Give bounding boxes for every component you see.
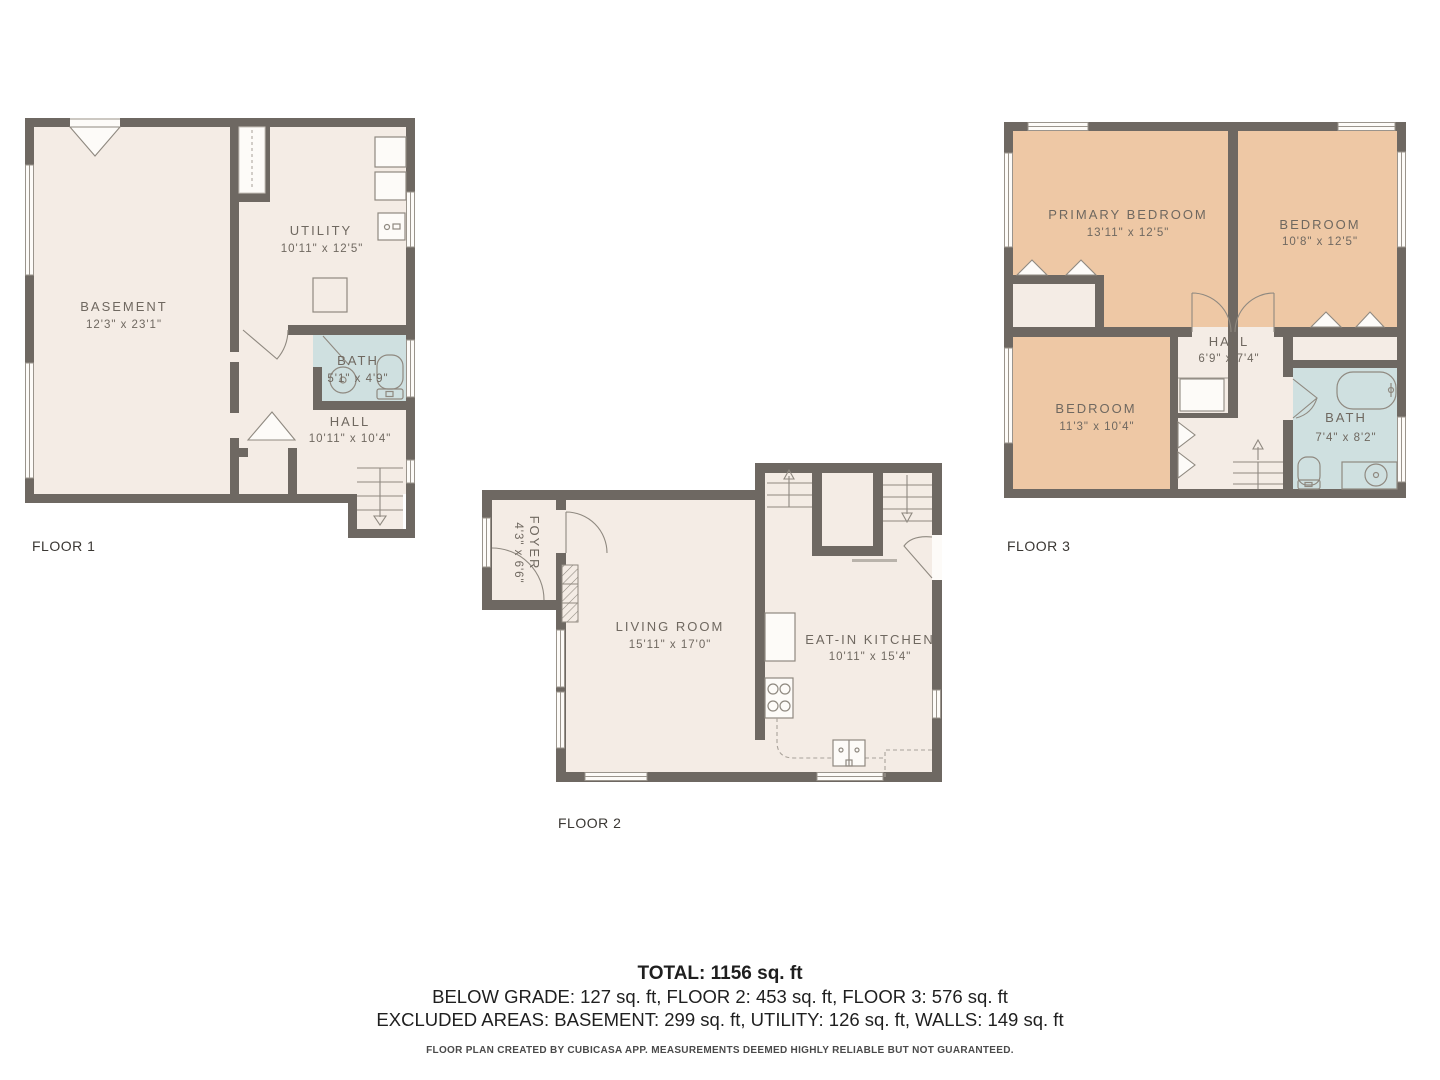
room-name: HALL bbox=[1209, 334, 1250, 349]
room-name: UTILITY bbox=[290, 223, 352, 238]
floor-1-plan: BASEMENT 12'3" x 23'1" UTILITY 10'11" x … bbox=[25, 118, 415, 540]
room-dims: 11'3" x 10'4" bbox=[1059, 421, 1134, 433]
room-name: BASEMENT bbox=[80, 299, 168, 314]
room-dims: 7'4" x 8'2" bbox=[1315, 432, 1376, 444]
room-dims: 10'11" x 10'4" bbox=[309, 433, 392, 445]
floor-plan-sheet: BASEMENT 12'3" x 23'1" UTILITY 10'11" x … bbox=[0, 0, 1440, 1080]
room-dims: 10'11" x 15'4" bbox=[829, 651, 912, 663]
floor-2-label: FLOOR 2 bbox=[558, 815, 621, 831]
area-summary: TOTAL: 1156 sq. ft BELOW GRADE: 127 sq. … bbox=[0, 963, 1440, 1056]
room-dims: 5'1" x 4'9" bbox=[327, 373, 388, 385]
room-name: BATH bbox=[1325, 410, 1367, 425]
room-dims: 4'3" x 6'6" bbox=[512, 522, 524, 583]
chimney bbox=[562, 565, 578, 622]
stove bbox=[765, 678, 793, 718]
room-dims: 10'11" x 12'5" bbox=[281, 243, 364, 255]
kitchen-counter bbox=[765, 613, 795, 661]
room-dims: 13'11" x 12'5" bbox=[1087, 227, 1170, 239]
room-dims: 12'3" x 23'1" bbox=[86, 319, 162, 331]
room-name: BATH bbox=[337, 353, 379, 368]
disclaimer: FLOOR PLAN CREATED BY CUBICASA APP. MEAS… bbox=[0, 1045, 1440, 1056]
floor-3-label: FLOOR 3 bbox=[1007, 538, 1070, 554]
room-dims: 10'8" x 12'5" bbox=[1282, 236, 1358, 248]
floor-2-plan: LIVING ROOM 15'11" x 17'0" EAT-IN KITCHE… bbox=[482, 452, 942, 784]
hall-closet bbox=[1178, 378, 1228, 411]
total-area: TOTAL: 1156 sq. ft bbox=[0, 963, 1440, 985]
kitchen-sink bbox=[833, 740, 865, 766]
room-name: BEDROOM bbox=[1279, 217, 1360, 232]
room-dims: 6'9" x 7'4" bbox=[1198, 353, 1259, 365]
room-name: BEDROOM bbox=[1055, 401, 1136, 416]
room-name: LIVING ROOM bbox=[616, 619, 725, 634]
room-name: EAT-IN KITCHEN bbox=[805, 632, 935, 647]
room-name: HALL bbox=[330, 414, 371, 429]
floor-areas: BELOW GRADE: 127 sq. ft, FLOOR 2: 453 sq… bbox=[0, 985, 1440, 1008]
floor-1-chase bbox=[239, 127, 265, 193]
floor-3-plan: PRIMARY BEDROOM 13'11" x 12'5" BEDROOM 1… bbox=[1004, 122, 1406, 498]
room-name: PRIMARY BEDROOM bbox=[1048, 207, 1208, 222]
room-dims: 15'11" x 17'0" bbox=[629, 639, 712, 651]
room-name: FOYER bbox=[527, 516, 542, 571]
excluded-areas: EXCLUDED AREAS: BASEMENT: 299 sq. ft, UT… bbox=[0, 1008, 1440, 1031]
floor-1-label: FLOOR 1 bbox=[32, 538, 95, 554]
landing-shelf bbox=[852, 559, 897, 562]
